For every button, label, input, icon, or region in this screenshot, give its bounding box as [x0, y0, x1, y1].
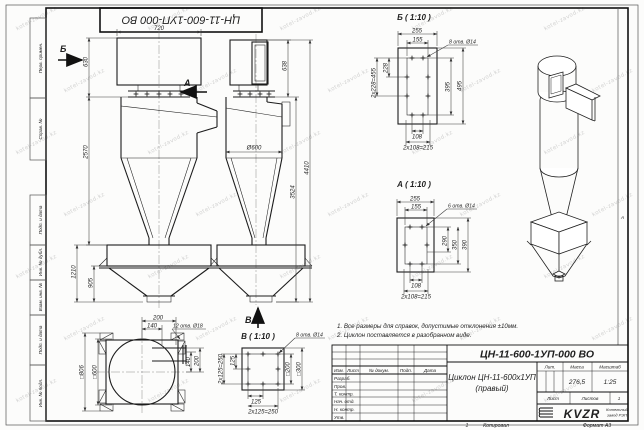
isometric-view — [527, 56, 600, 281]
dim-label: □600 — [93, 365, 99, 379]
frame-left-cells: Перв. примен. Справ. № Подп. и дата Инв.… — [30, 18, 46, 421]
tb-row: Т. контр. — [334, 392, 354, 397]
detail-b-dims: 255 155 8 отв. Ø14 228 2х228=455 395 495… — [372, 29, 479, 152]
dim-label: Ø600 — [246, 146, 262, 152]
logo-sub: завод РЭП — [606, 413, 627, 418]
tb-col: Дата — [423, 368, 437, 373]
detail-a: А ( 1:10 ) 255 155 6 отв. Ø14 290 350 39… — [396, 180, 477, 301]
frame-label: Инв. № подл. — [38, 379, 43, 408]
dim-label: 2х108=215 — [400, 295, 432, 301]
title-block: Изм. Лист № докум. Подп. Дата Разраб. Пр… — [332, 345, 629, 421]
copy-num: 1 — [466, 423, 469, 429]
dim-label: 290 — [443, 235, 449, 247]
dim-label: 108 — [411, 284, 422, 290]
hole-callout: 8 отв. Ø14 — [449, 40, 476, 46]
tb-sheet-label: Лист — [546, 396, 559, 401]
detail-a-dims: 255 155 6 отв. Ø14 290 350 390 108 2х108… — [397, 197, 477, 301]
frame-label: Подп. и дата — [38, 325, 43, 354]
drawing-sheet: kotel-zavod.kzkotel-zavod.kzkotel-zavod.… — [0, 0, 644, 430]
dim-label: 255 — [411, 29, 423, 35]
logo-sub: Котельный — [606, 407, 629, 412]
notes: 1. Все размеры для справок, допустимые о… — [336, 323, 518, 339]
dim-label: 350 — [453, 239, 459, 250]
dim-label: 495 — [458, 80, 464, 91]
dim-label: 2х228=455 — [372, 67, 378, 99]
front-dims: 720 630 2570 1210 905 — [72, 26, 202, 302]
dim-label: 1210 — [72, 265, 78, 279]
side-view: Ø600 В 638 3524 4410 — [210, 34, 313, 328]
tb-sheets-value: 1 — [618, 396, 621, 401]
tb-lit-label: Лит. — [544, 365, 556, 370]
frame-label: Справ. № — [38, 119, 43, 140]
note-line: 2. Циклон поставляется в разобранном вид… — [336, 332, 471, 339]
dim-label: 155 — [412, 38, 423, 44]
dim-label: 395 — [446, 81, 452, 92]
top-stamp: ЦН-11-600-1УП-000 ВО — [100, 8, 262, 32]
dim-label: 638 — [283, 60, 289, 71]
company-logo: KVZR Котельный завод РЭП — [539, 407, 628, 421]
dim-label: 155 — [411, 205, 422, 211]
tb-col: Подп. — [400, 368, 412, 373]
dim-label: 905 — [89, 277, 95, 288]
detail-b: Б ( 1:10 ) 255 155 8 отв. Ø14 228 2х228=… — [372, 13, 479, 152]
top-view: 200 140 12 отв. Ø18 140 200 □806 □600 — [80, 316, 207, 414]
hole-callout: 6 отв. Ø14 — [448, 204, 475, 210]
frame-label: Инв. № дубл. — [38, 248, 43, 276]
tb-row: Нач. отд. — [334, 399, 355, 404]
tb-name-line2: (правый) — [475, 384, 508, 393]
copy-label: Копировал — [483, 423, 509, 429]
dim-label: 125 — [231, 355, 237, 366]
dim-label: 720 — [154, 26, 165, 32]
tb-row: Утв. — [334, 415, 344, 420]
hole-callout: 8 отв. Ø14 — [296, 333, 323, 339]
frame-label: Взам. инв. № — [38, 283, 43, 311]
format-label: Формат А3 — [583, 423, 611, 429]
dim-label: 140 — [186, 356, 192, 367]
view-arrow-v-label: В — [245, 315, 252, 325]
tb-col: Лист — [346, 368, 359, 373]
tb-scale-value: 1:25 — [604, 379, 617, 386]
dim-label: 390 — [463, 239, 469, 250]
note-line: 1. Все размеры для справок, допустимые о… — [337, 323, 518, 330]
dim-label: 630 — [84, 56, 90, 67]
dim-label: 255 — [409, 197, 421, 203]
stamp-doc-number: ЦН-11-600-1УП-000 ВО — [121, 14, 240, 26]
tb-doc-number: ЦН-11-600-1УП-000 ВО — [480, 349, 594, 361]
detail-v: В ( 1:10 ) 8 отв. Ø14 125 2х125=250 □200… — [219, 332, 326, 416]
logo-text: KVZR — [564, 407, 601, 421]
view-arrow-a-label: А — [183, 78, 191, 88]
dim-label: 2570 — [84, 145, 90, 160]
cyclone-drawing: А Перв. примен. Справ. № Подп. и дата Ин… — [0, 0, 644, 430]
dim-label: 125 — [251, 400, 262, 406]
hole-callout: 12 отв. Ø18 — [173, 324, 203, 330]
dim-label: 200 — [195, 355, 201, 367]
dim-label: 228 — [384, 62, 390, 74]
dim-label: 140 — [147, 324, 158, 330]
dim-label: 3524 — [291, 185, 297, 199]
dim-label: 200 — [152, 316, 164, 322]
tb-row: Н. контр. — [334, 407, 355, 412]
view-arrow-b-label: Б — [60, 44, 67, 54]
tb-row: Разраб. — [334, 376, 351, 381]
tb-row: Пров. — [334, 384, 346, 389]
frame-label: Перв. примен. — [38, 43, 43, 74]
zone-letter: А — [620, 215, 624, 220]
tb-mass-label: Масса — [570, 365, 584, 370]
dim-label: □300 — [297, 362, 303, 376]
detail-v-dims: 8 отв. Ø14 125 2х125=250 □200 □300 125 2… — [219, 333, 326, 416]
frame-label: Подп. и дата — [38, 205, 43, 234]
detail-title: А ( 1:10 ) — [396, 180, 431, 189]
detail-title: В ( 1:10 ) — [241, 332, 275, 341]
tb-name-line1: Циклон ЦН-11-600х1УП — [448, 373, 536, 382]
tb-mass-value: 276,5 — [568, 379, 586, 386]
dim-label: □200 — [286, 362, 292, 376]
dim-label: □806 — [80, 365, 86, 379]
tb-col: № докум. — [369, 368, 389, 373]
tb-sheets-label: Листов — [581, 396, 599, 401]
coil-icon — [539, 408, 553, 417]
tb-scale-label: Масштаб — [599, 365, 621, 370]
dim-label: 2х125=250 — [247, 410, 279, 416]
dim-label: 108 — [412, 135, 423, 141]
front-view: Б А 720 630 2570 1210 905 — [58, 26, 219, 308]
dim-label: 2х108=215 — [402, 146, 434, 152]
detail-title: Б ( 1:10 ) — [397, 13, 431, 22]
dim-label: 4410 — [305, 161, 311, 175]
top-view-dims: 200 140 12 отв. Ø18 140 200 □806 □600 — [80, 316, 207, 412]
dim-label: 2х125=250 — [219, 353, 225, 385]
tb-col: Изм. — [334, 368, 344, 373]
side-dims: 638 3524 4410 — [267, 40, 313, 302]
